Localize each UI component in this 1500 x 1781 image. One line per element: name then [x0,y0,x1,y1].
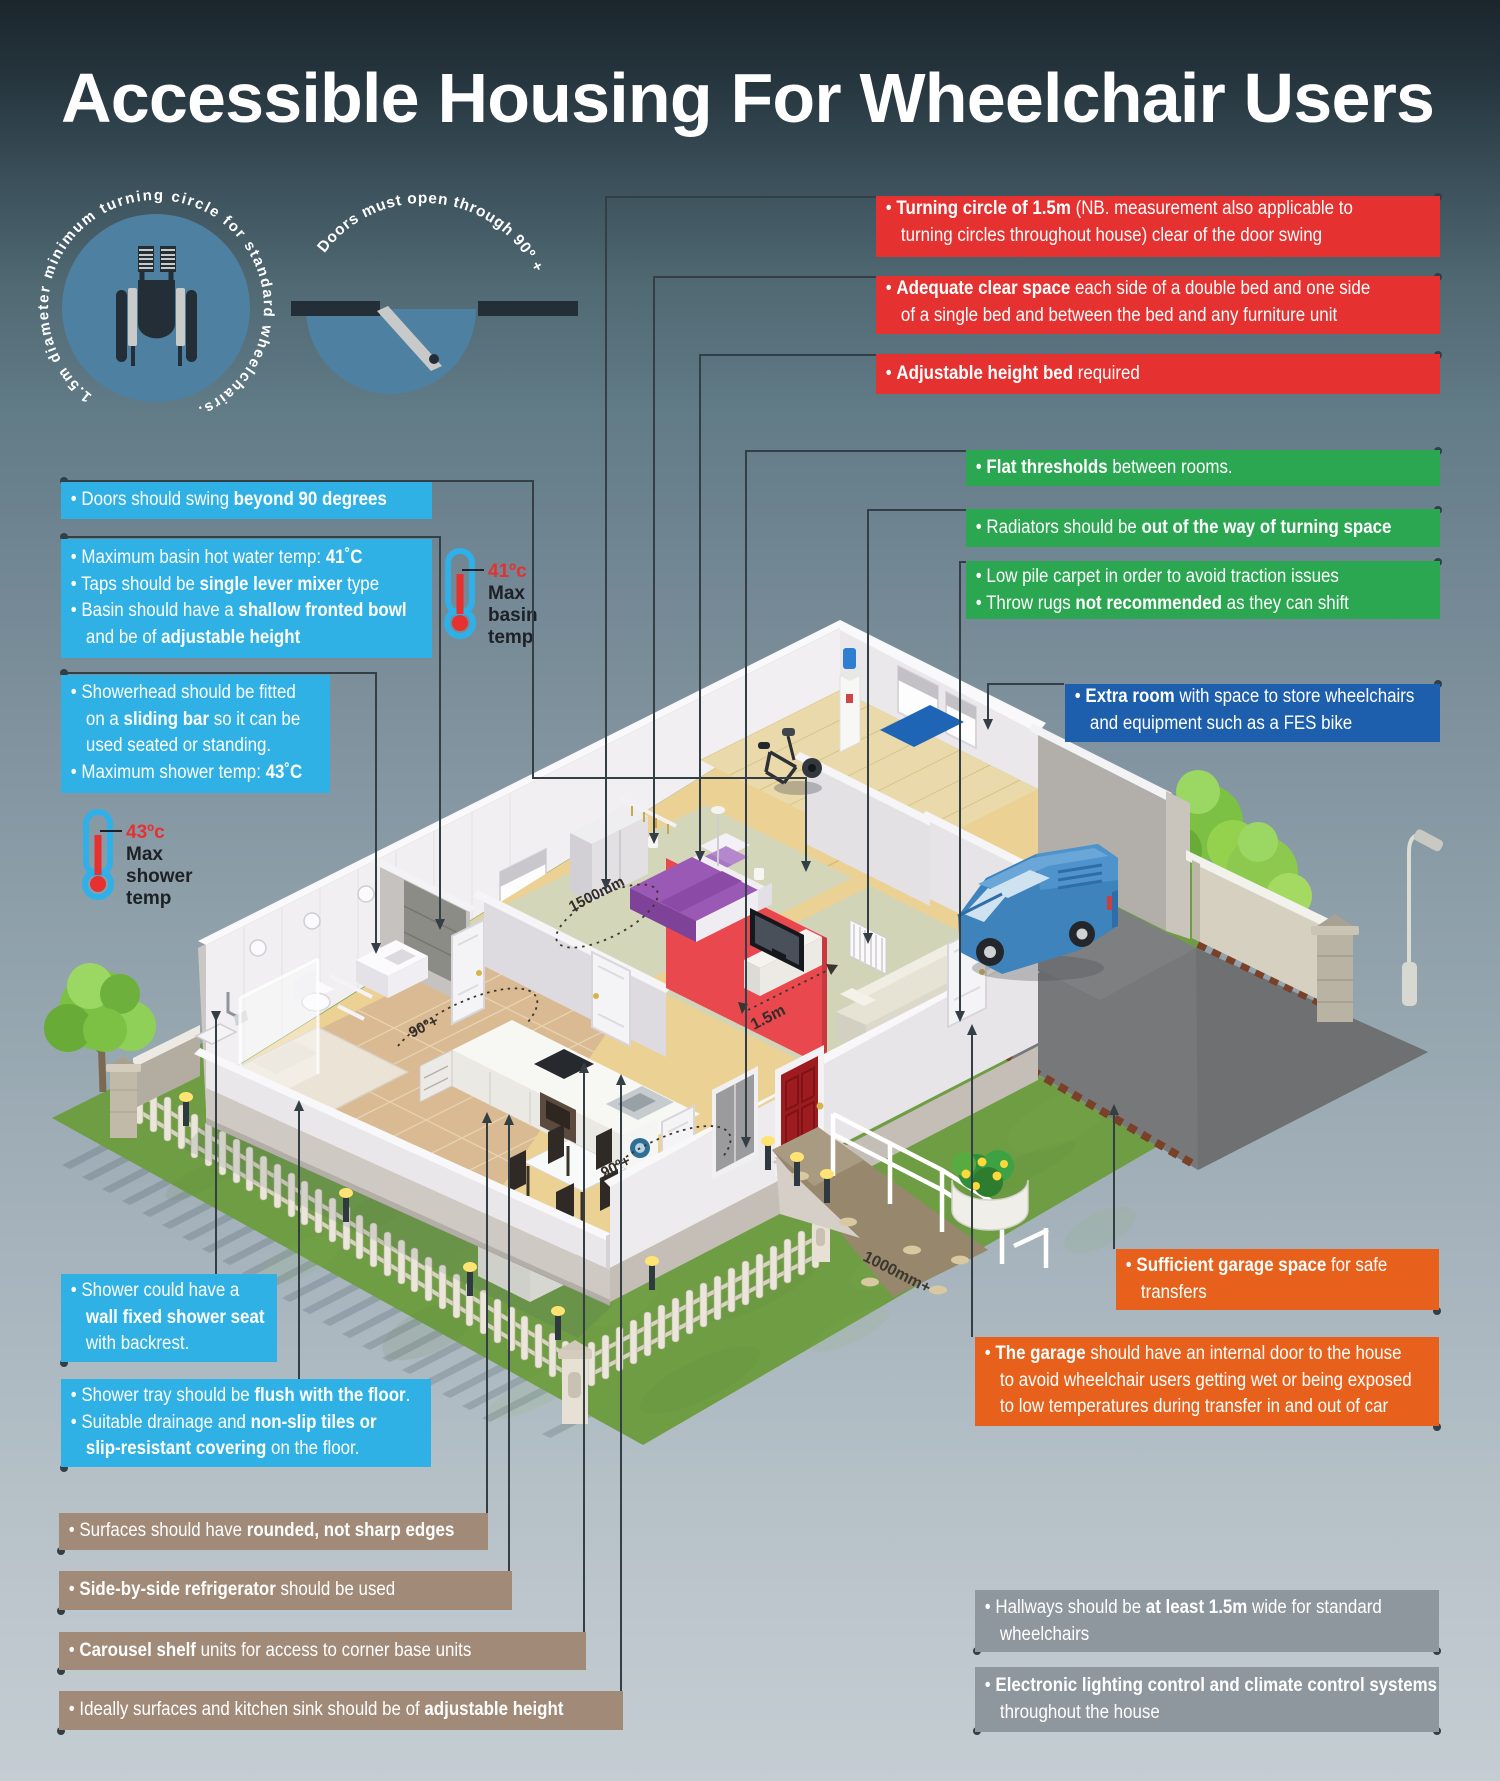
svg-text:temp: temp [126,888,171,909]
svg-text:41ºc: 41ºc [488,561,527,582]
svg-text:Max: Max [488,583,525,604]
svg-text:Doors must open through 90º +: Doors must open through 90º + [314,190,546,275]
svg-text:shower: shower [126,866,193,887]
svg-text:basin: basin [488,605,538,626]
svg-text:Max: Max [126,844,163,865]
svg-text:43ºc: 43ºc [126,822,165,843]
svg-text:temp: temp [488,627,533,648]
